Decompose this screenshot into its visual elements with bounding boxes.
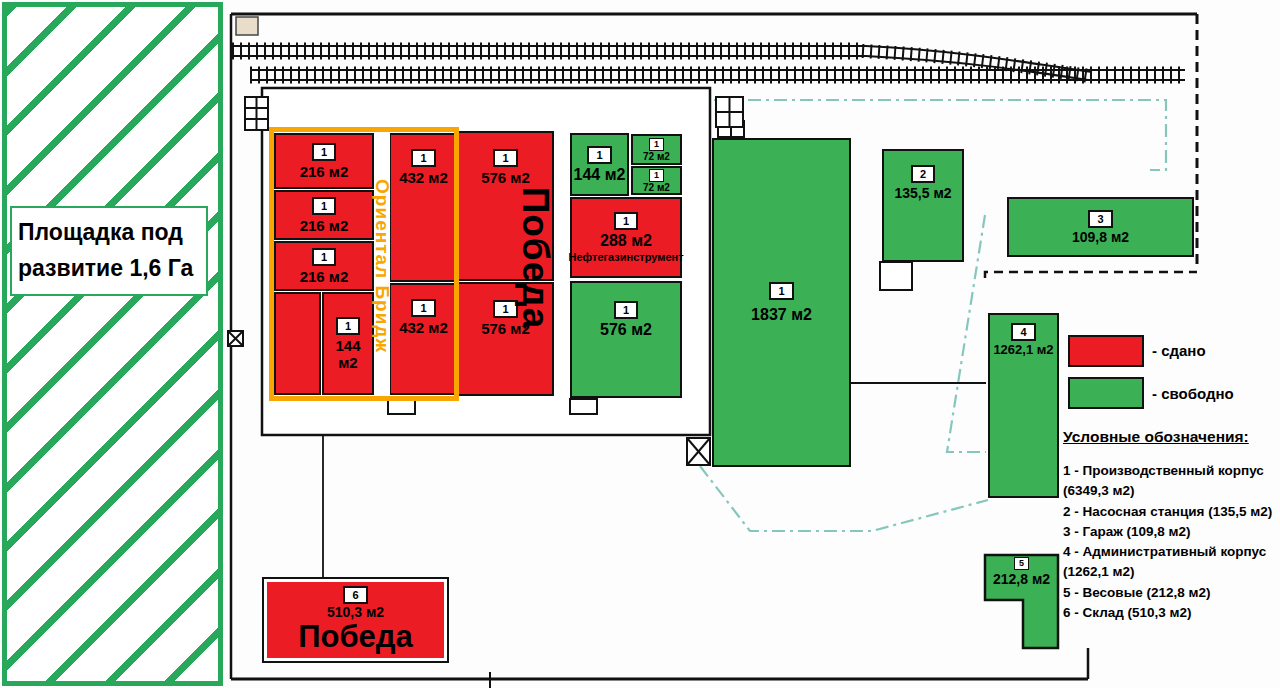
development-area-hatch (2, 2, 223, 686)
unit-badge: 1 (769, 282, 793, 300)
unit-area: 72 м2 (643, 182, 670, 193)
unit-area: 144 м2 (324, 337, 372, 371)
unit-badge: 1 (493, 149, 517, 167)
unit-block-unlabeled (274, 292, 321, 395)
unit-block-216-a: 1 216 м2 (274, 133, 374, 189)
unit-area: 216 м2 (300, 268, 349, 285)
key-item: 3 - Гараж (109,8 м2) (1063, 522, 1280, 542)
unit-area: 144 м2 (574, 166, 626, 184)
unit-area: 109,8 м2 (1072, 229, 1129, 245)
unit-area: 432 м2 (399, 169, 448, 186)
unit-badge: 1 (614, 301, 638, 319)
unit-badge: 1 (411, 149, 435, 167)
unit-area: 576 м2 (600, 321, 652, 339)
unit-block-72-b: 1 72 м2 (631, 166, 682, 195)
unit-badge: 1 (312, 143, 336, 161)
key-item: 4 - Административный корпус (1262,1 м2) (1063, 542, 1280, 583)
unit-block-432-a: 1 432 м2 (389, 133, 458, 282)
unit-badge: 6 (343, 586, 367, 604)
tenant-label-pobeda: Победа (515, 158, 555, 358)
legend-free-swatch (1068, 377, 1144, 409)
legend-free-label: - свободно (1152, 385, 1234, 402)
building-pump-station: 2 135,5 м2 (882, 149, 964, 262)
unit-badge: 1 (312, 248, 336, 266)
development-area-label: Площадка под развитие 1,6 Га (10, 206, 208, 296)
unit-area: 135,5 м2 (894, 185, 951, 201)
legend-leased-label: - сдано (1152, 342, 1206, 359)
key-item: 5 - Весовые (212,8 м2) (1063, 583, 1280, 603)
legend-leased-swatch (1068, 335, 1144, 367)
unit-badge: 4 (1011, 323, 1035, 341)
unit-block-216-c: 1 216 м2 (274, 241, 374, 291)
small-building-icon (236, 17, 258, 35)
building-admin: 4 1262,1 м2 (988, 313, 1059, 498)
unit-area: 72 м2 (643, 151, 670, 162)
key-title: Условные обозначения: (1063, 428, 1280, 446)
key-item: 1 - Производственный корпус (6349,3 м2) (1063, 461, 1280, 502)
unit-block-1837: 1 1837 м2 (712, 138, 851, 467)
key-item: 2 - Насосная станция (135,5 м2) (1063, 502, 1280, 522)
building-garage: 3 109,8 м2 (1007, 197, 1194, 257)
unit-block-288: 1 288 м2 Нефтегазинструмент (570, 197, 682, 278)
unit-badge: 5 (1014, 557, 1029, 570)
unit-block-432-b: 1 432 м2 (389, 283, 458, 395)
unit-badge: 2 (911, 165, 935, 183)
unit-badge: 1 (649, 138, 664, 151)
unit-area: 216 м2 (300, 217, 349, 234)
unit-area: 212,8 м2 (993, 571, 1050, 587)
unit-area: 510,3 м2 (327, 604, 384, 620)
unit-block-144-red: 1 144 м2 (322, 292, 374, 395)
unit-badge: 1 (336, 317, 360, 335)
unit-badge: 1 (312, 197, 336, 215)
railroad-tracks-icon (232, 46, 1185, 80)
unit-badge: 3 (1088, 210, 1112, 228)
tenant-label: Победа (298, 621, 413, 654)
building-warehouse: 6 510,3 м2 Победа (262, 577, 449, 663)
unit-badge: 1 (493, 300, 517, 318)
unit-area: 1837 м2 (751, 306, 812, 324)
building-weighbridge-label: 5 212,8 м2 (985, 557, 1058, 587)
unit-area: 1262,1 м2 (993, 342, 1053, 357)
unit-area: 288 м2 (600, 232, 652, 250)
unit-block-576-green: 1 576 м2 (570, 281, 682, 398)
key-panel: Условные обозначения: 1 - Производственн… (1063, 428, 1280, 623)
unit-badge: 1 (411, 299, 435, 317)
tenant-label: Нефтегазинструмент (568, 251, 683, 263)
unit-badge: 1 (649, 169, 664, 182)
unit-badge: 1 (587, 146, 611, 164)
site-plan: Площадка под развитие 1,6 Га 1 216 м2 1 … (0, 0, 1280, 688)
unit-area: 216 м2 (300, 163, 349, 180)
key-item: 6 - Склад (510,3 м2) (1063, 603, 1280, 623)
unit-block-72-a: 1 72 м2 (631, 134, 682, 165)
unit-block-216-b: 1 216 м2 (274, 190, 374, 240)
tenant-label-oriental-bridge: Ориентал Бридж (372, 126, 392, 406)
unit-badge: 1 (614, 212, 638, 230)
unit-block-144-green: 1 144 м2 (570, 133, 629, 196)
unit-area: 432 м2 (399, 319, 448, 336)
